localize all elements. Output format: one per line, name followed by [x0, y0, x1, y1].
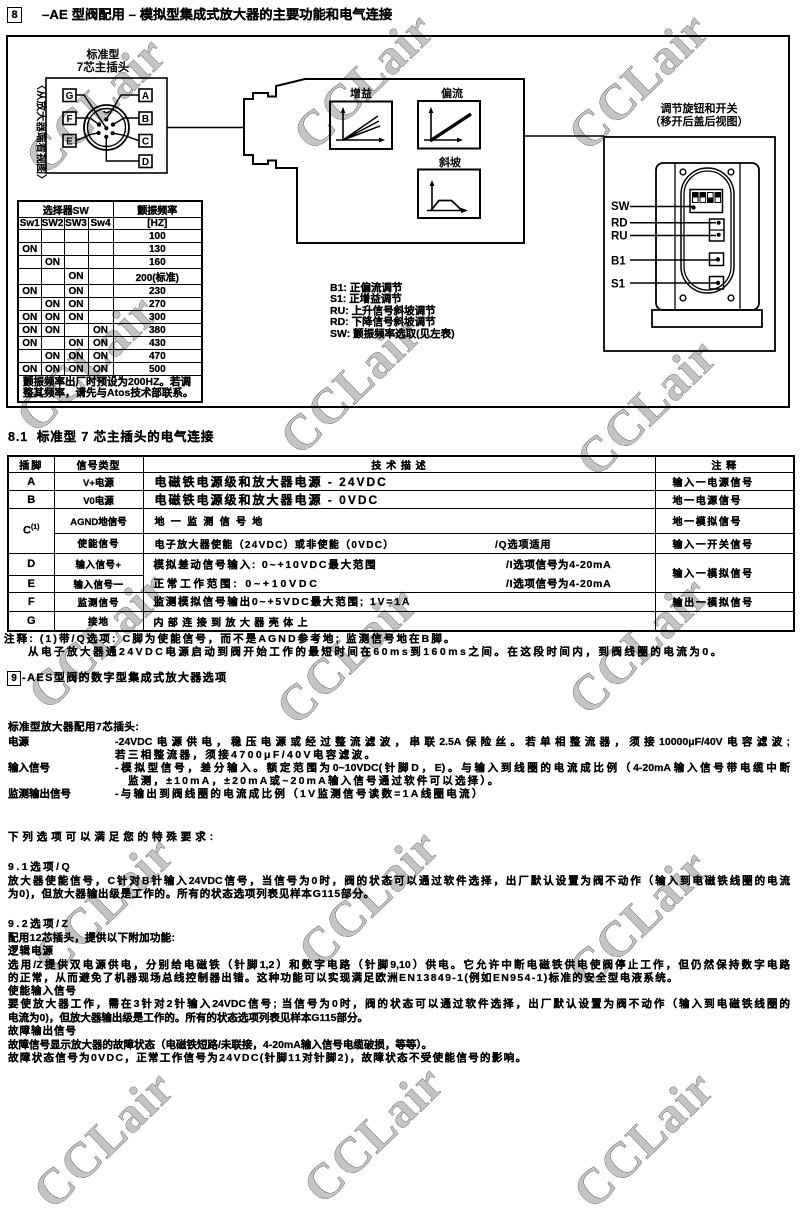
- svg-text:D: D: [142, 157, 149, 168]
- svg-text:标准型: 标准型: [86, 47, 120, 61]
- svg-text:偏流: 偏流: [441, 86, 463, 100]
- svg-text:A: A: [142, 91, 149, 102]
- svg-text:斜坡: 斜坡: [438, 155, 462, 169]
- svg-text:调节旋钮和开关: 调节旋钮和开关: [661, 101, 738, 115]
- svg-text:（移开后盖后视图）: （移开后盖后视图）: [650, 114, 749, 128]
- svg-text:B: B: [142, 114, 149, 125]
- svg-text:增益: 增益: [350, 86, 372, 100]
- svg-text:B1: B1: [611, 256, 626, 268]
- svg-text:G: G: [66, 91, 74, 102]
- svg-text:C: C: [142, 137, 149, 148]
- svg-text:S1: S1: [611, 279, 626, 291]
- svg-text:E: E: [66, 137, 73, 148]
- svg-text:7芯主插头: 7芯主插头: [77, 60, 130, 74]
- svg-text:SW: SW: [611, 201, 630, 213]
- svg-text:RU: RU: [611, 231, 628, 243]
- svg-text:F: F: [66, 114, 72, 125]
- svg-text:RD: RD: [611, 218, 628, 230]
